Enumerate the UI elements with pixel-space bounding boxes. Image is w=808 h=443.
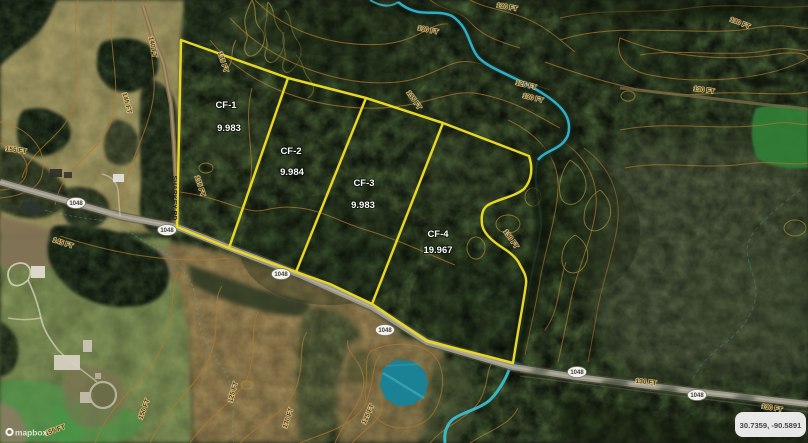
svg-text:mapbox: mapbox: [15, 427, 47, 437]
svg-text:30.7359, -90.5891: 30.7359, -90.5891: [740, 421, 802, 430]
